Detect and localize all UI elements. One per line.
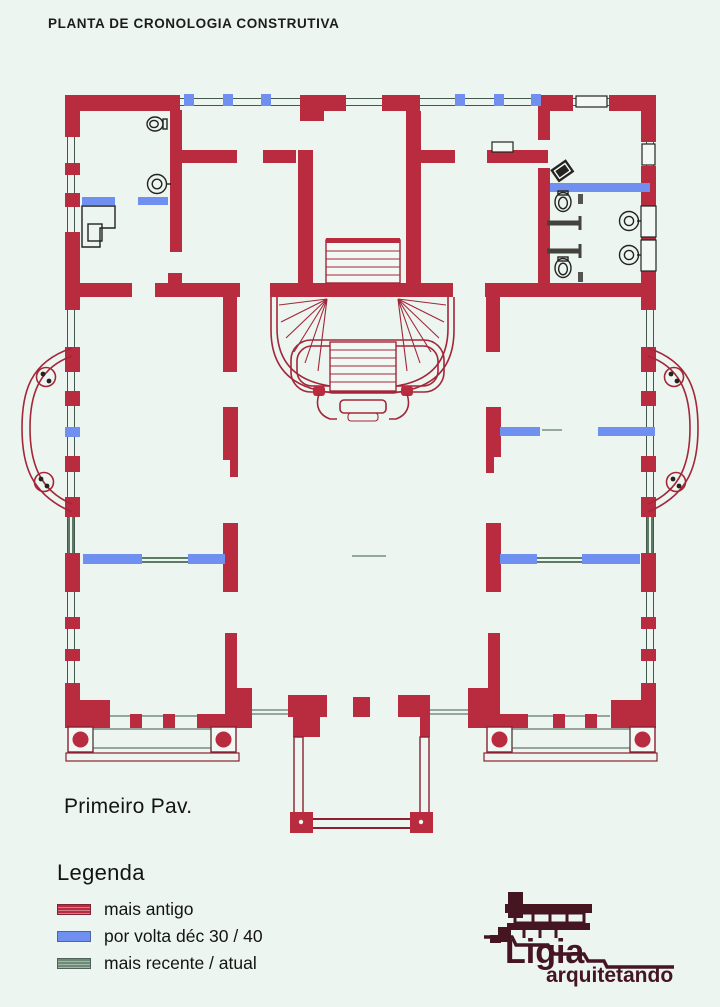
legend-swatch-oldest <box>57 904 91 915</box>
logo-ligia-arquitetando: Ligia arquitetando <box>478 874 688 999</box>
center-porch <box>290 737 433 833</box>
logo-tagline: arquitetando <box>546 964 673 987</box>
staircase <box>270 238 454 421</box>
logo-house-icon: Ligia arquitetando <box>478 874 688 994</box>
legend-item-recent: mais recente / atual <box>57 954 263 972</box>
right-bay <box>648 348 698 512</box>
legend-heading: Legenda <box>57 860 263 886</box>
bathroom-fixtures-top-left <box>82 117 171 247</box>
floor-label: Primeiro Pav. <box>64 795 192 819</box>
legend-swatch-recent <box>57 958 91 969</box>
scanned-drawing-page: PLANTA DE CRONOLOGIA CONSTRUTIVA <box>0 0 720 1007</box>
side-porches <box>66 727 657 761</box>
legend-label-recent: mais recente / atual <box>104 953 257 974</box>
floor-plan <box>0 0 720 1007</box>
legend-item-dec3040: por volta déc 30 / 40 <box>57 927 263 945</box>
legend-label-dec3040: por volta déc 30 / 40 <box>104 926 263 947</box>
legend: Legenda mais antigo por volta déc 30 / 4… <box>57 860 263 981</box>
recent-walls <box>69 430 652 562</box>
legend-label-oldest: mais antigo <box>104 899 194 920</box>
legend-swatch-dec3040 <box>57 931 91 942</box>
left-bay <box>22 348 72 512</box>
legend-item-oldest: mais antigo <box>57 900 263 918</box>
